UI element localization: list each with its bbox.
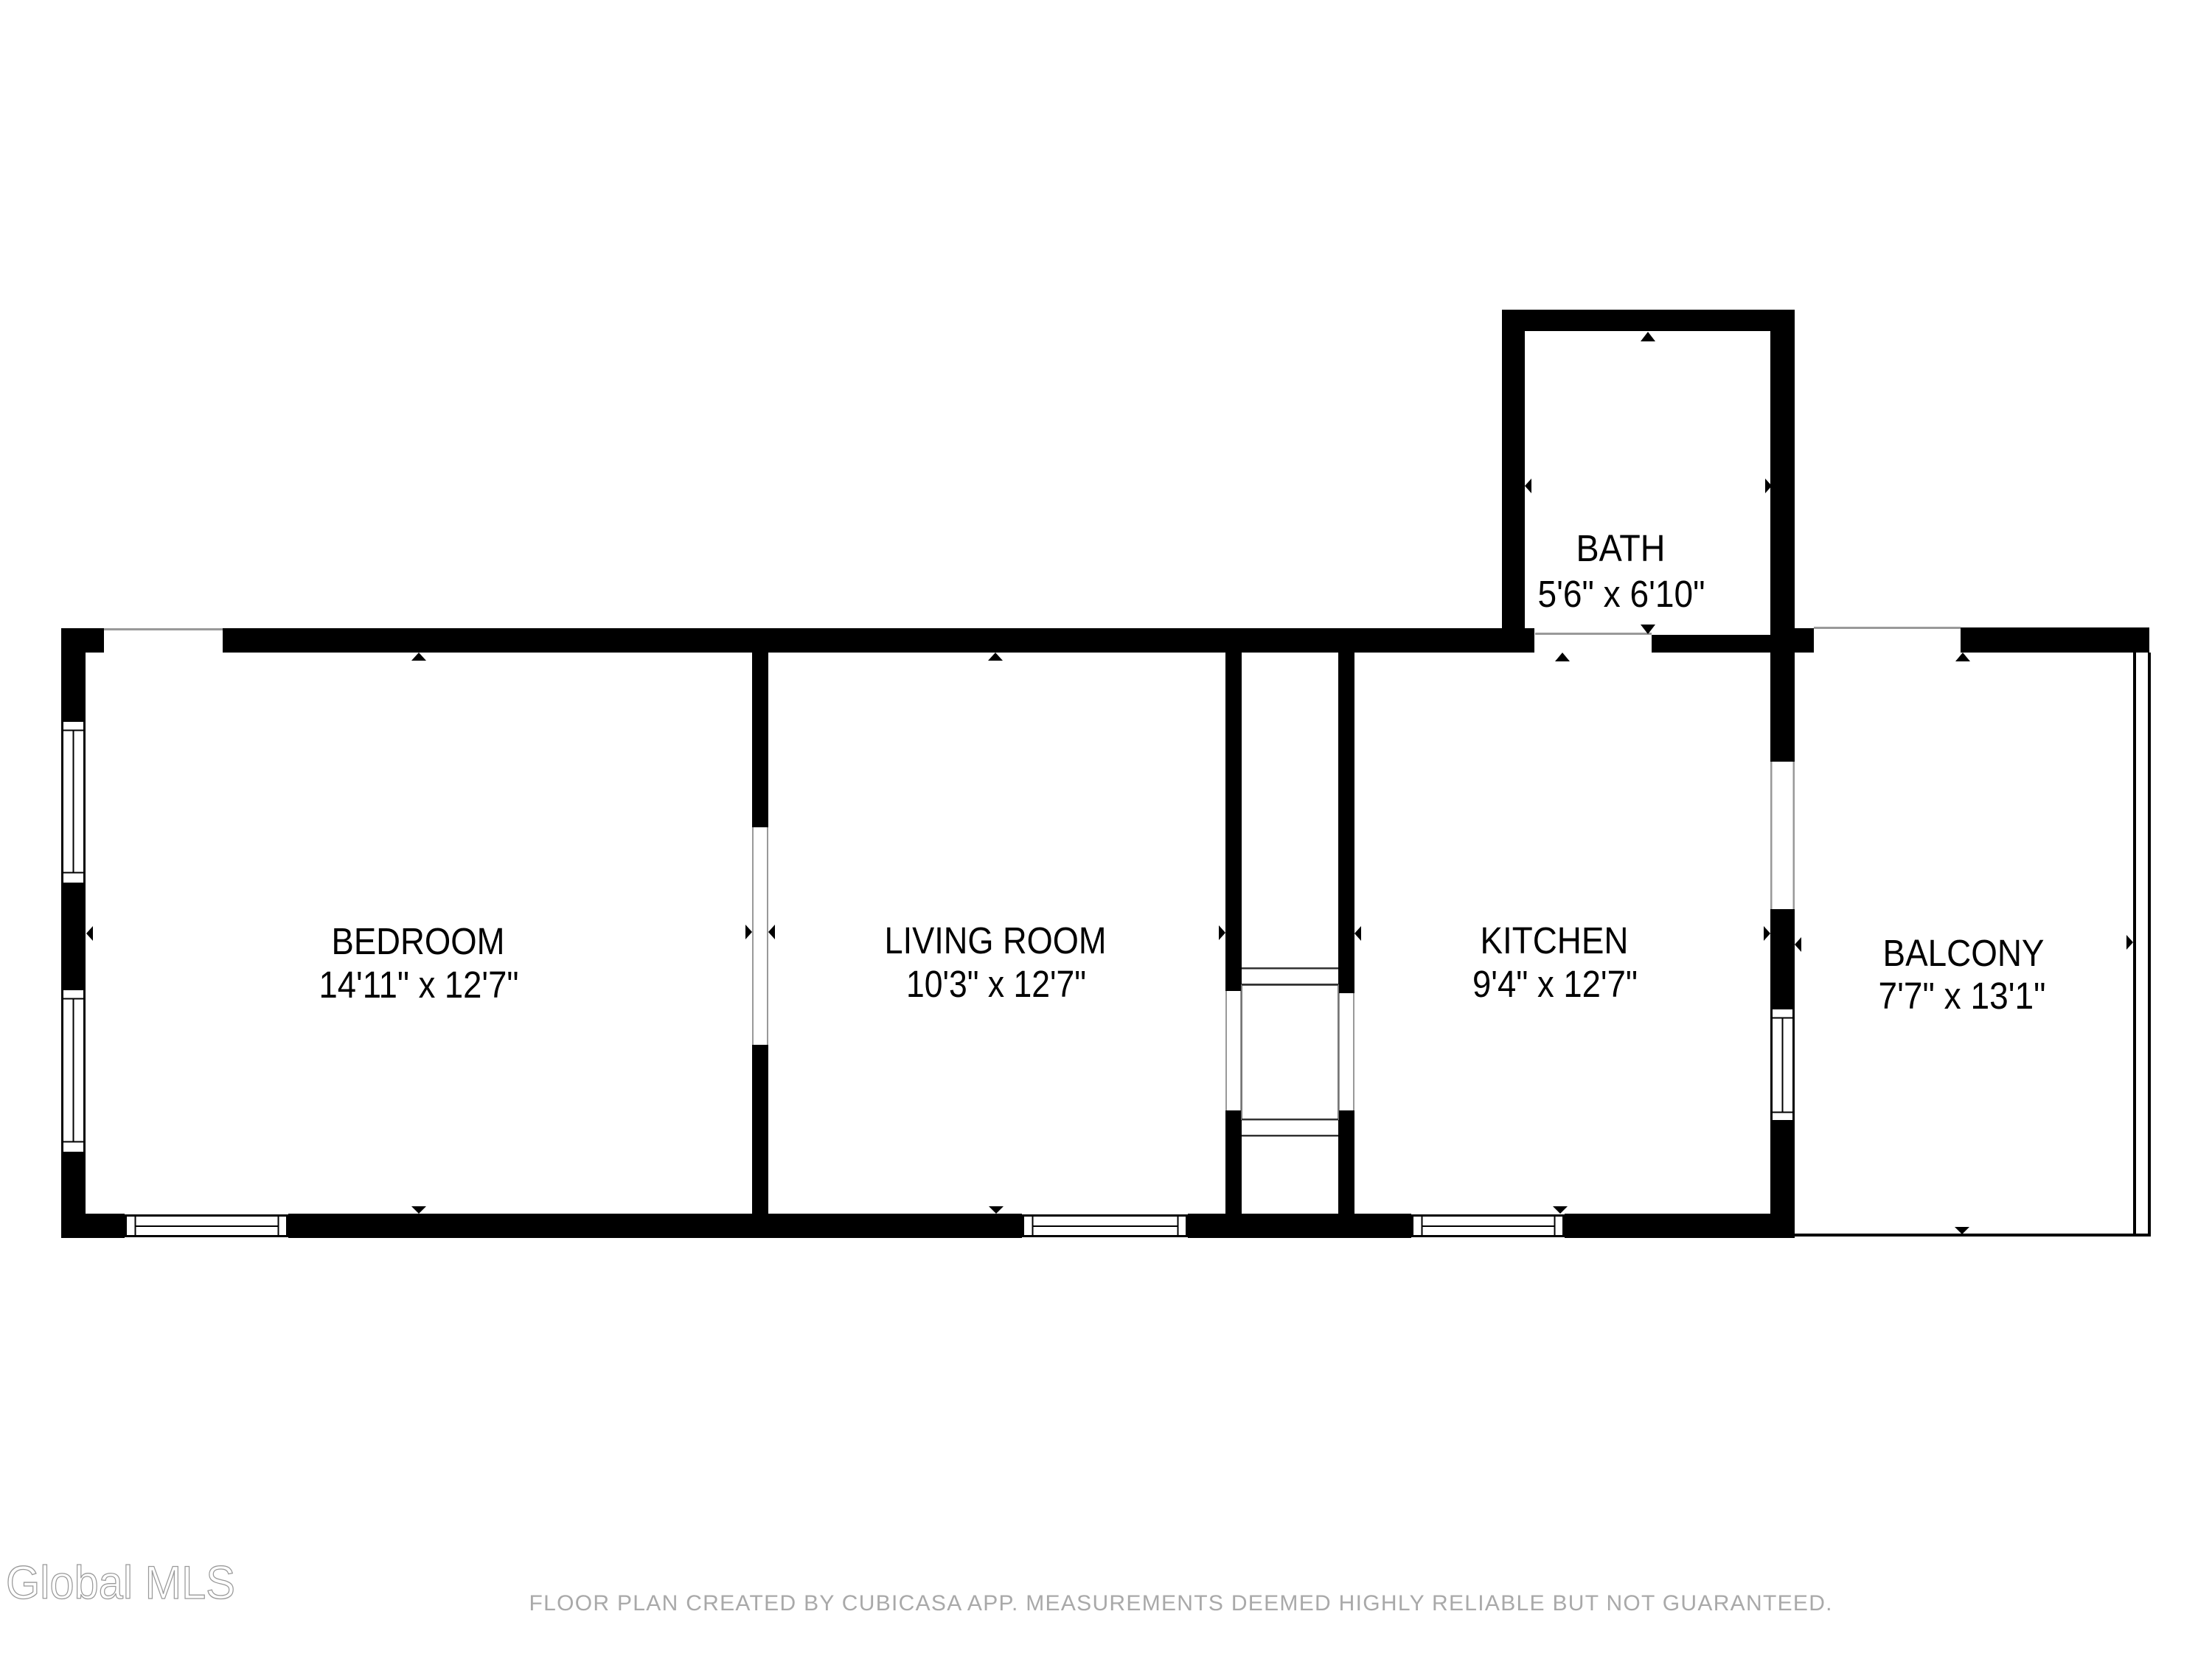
svg-text:Global MLS: Global MLS	[6, 1557, 235, 1609]
svg-text:9'4" x 12'7": 9'4" x 12'7"	[1472, 963, 1638, 1005]
svg-text:5'6" x 6'10": 5'6" x 6'10"	[1538, 573, 1705, 615]
svg-text:FLOOR PLAN CREATED BY CUBICASA: FLOOR PLAN CREATED BY CUBICASA APP. MEAS…	[529, 1591, 1832, 1615]
svg-text:LIVING ROOM: LIVING ROOM	[885, 919, 1107, 961]
svg-text:7'7" x 13'1": 7'7" x 13'1"	[1879, 975, 2046, 1017]
svg-text:BEDROOM: BEDROOM	[332, 920, 505, 962]
svg-text:BATH: BATH	[1576, 527, 1666, 569]
svg-text:14'11" x 12'7": 14'11" x 12'7"	[319, 964, 519, 1006]
svg-text:KITCHEN: KITCHEN	[1481, 919, 1629, 961]
svg-text:BALCONY: BALCONY	[1883, 932, 2045, 974]
svg-text:10'3" x 12'7": 10'3" x 12'7"	[906, 963, 1086, 1005]
